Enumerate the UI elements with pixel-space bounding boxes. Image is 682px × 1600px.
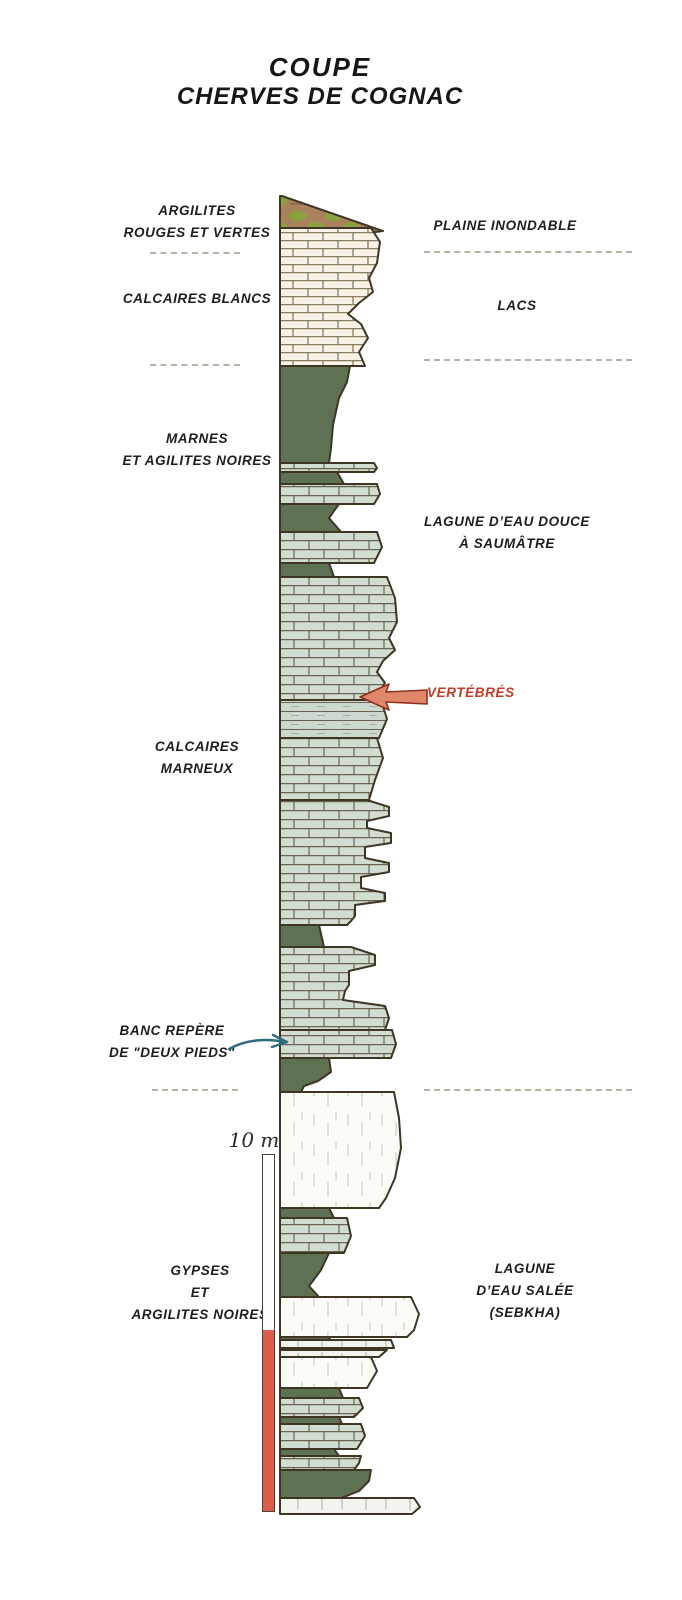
label-calcaires-blancs: CALCAIRES BLANCS — [123, 288, 271, 310]
label-plaine-inondable: PLAINE INONDABLE — [433, 215, 576, 237]
layer-gypse-lens-1 — [280, 1340, 394, 1348]
coupe-diagram: COUPE CHERVES DE COGNAC — [0, 0, 682, 1600]
layer-calcaires-marneux-mid — [280, 738, 383, 800]
layer-white-base-band — [280, 1498, 420, 1514]
label-lacs: LACS — [497, 295, 536, 317]
layer-marl-band-10 — [280, 1417, 342, 1424]
layer-marl-band-6 — [280, 1208, 334, 1218]
layer-grey-ledge-4 — [280, 1218, 351, 1253]
layer-calcaires-marneux-ledges-2 — [280, 947, 389, 1030]
label-vertebres: VERTÉBRÉS — [427, 682, 515, 704]
vertebres-arrow-icon — [355, 678, 435, 714]
dashed-separator — [424, 1089, 632, 1091]
label-gypses-argilites-noires: GYPSES ET ARGILITES NOIRES — [131, 1260, 268, 1326]
scale-label: 10 m — [224, 1128, 284, 1152]
layer-gypse-3 — [280, 1357, 377, 1388]
label-lagune-eau-douce: LAGUNE D’EAU DOUCE À SAUMÂTRE — [424, 511, 590, 555]
layer-marl-band-1 — [280, 472, 344, 484]
layer-ledge-2 — [280, 484, 380, 504]
dashed-separator — [152, 1089, 238, 1091]
layer-calcaires-blancs — [280, 228, 380, 366]
layer-gypse-2 — [280, 1297, 419, 1337]
layer-marl-band-4 — [280, 925, 324, 947]
layer-gypse-lens-2 — [280, 1350, 387, 1357]
layer-grey-ledge-5 — [280, 1398, 363, 1417]
label-banc-repere: BANC REPÈRE DE "DEUX PIEDS" — [109, 1020, 235, 1064]
dashed-separator — [150, 252, 240, 254]
label-marnes-argilites-noires: MARNES ET AGILITES NOIRES — [122, 428, 271, 472]
layer-grey-ledge-6 — [280, 1424, 365, 1449]
layer-calcaires-marneux-ledges-1 — [280, 800, 391, 925]
layer-marl-band-11 — [280, 1449, 339, 1456]
layer-ledge-3 — [280, 532, 382, 563]
banc-repere-arrow-icon — [225, 1028, 295, 1058]
dashed-separator — [150, 364, 240, 366]
label-calcaires-marneux: CALCAIRES MARNEUX — [155, 736, 239, 780]
dashed-separator — [424, 359, 632, 361]
layer-gypse-massif — [280, 1092, 401, 1208]
scale-bar — [262, 1154, 275, 1512]
scale-bar-red-segment — [263, 1330, 274, 1511]
layer-marl-band-3 — [280, 563, 334, 577]
stratigraphic-column — [0, 0, 682, 1600]
layer-marl-band-9 — [280, 1388, 343, 1398]
layer-marl-band-7 — [280, 1253, 329, 1297]
layer-banc-repere-deux-pieds — [280, 1030, 396, 1058]
layer-marl-band-2 — [280, 504, 341, 532]
dashed-separator — [424, 251, 632, 253]
layer-marnes-et-argilites-noires — [280, 366, 350, 463]
layer-thin-ledge-1 — [280, 463, 377, 472]
label-argilites-rouges-et-vertes: ARGILITES ROUGES ET VERTES — [124, 200, 271, 244]
label-lagune-eau-salee: LAGUNE D’EAU SALÉE (SEBKHA) — [476, 1258, 573, 1324]
layer-marl-band-5 — [280, 1058, 331, 1092]
layer-grey-ledge-7 — [280, 1456, 361, 1470]
